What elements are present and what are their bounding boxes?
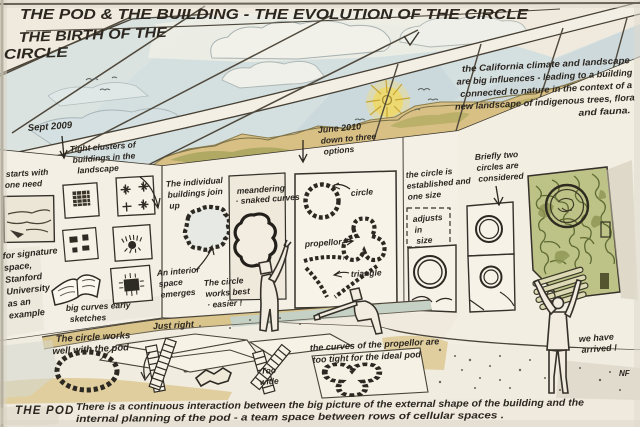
svg-text:THE POD: THE POD [15, 405, 75, 417]
svg-text:triangle: triangle [351, 267, 382, 279]
svg-text:up: up [169, 200, 180, 211]
svg-text:wide: wide [259, 376, 279, 387]
svg-text:THE POD & THE BUILDING - THE E: THE POD & THE BUILDING - THE EVOLUTION O… [20, 7, 530, 23]
svg-text:circle: circle [350, 186, 373, 198]
svg-text:space: space [158, 277, 183, 289]
svg-text:Too: Too [260, 365, 276, 376]
svg-text:CIRCLE: CIRCLE [4, 44, 69, 62]
svg-text:one need: one need [5, 178, 44, 190]
svg-text:size: size [416, 235, 433, 246]
svg-text:NF: NF [619, 369, 631, 378]
svg-text:sketches: sketches [70, 312, 107, 324]
svg-text:in: in [414, 224, 422, 235]
svg-text:adjusts: adjusts [412, 212, 443, 224]
